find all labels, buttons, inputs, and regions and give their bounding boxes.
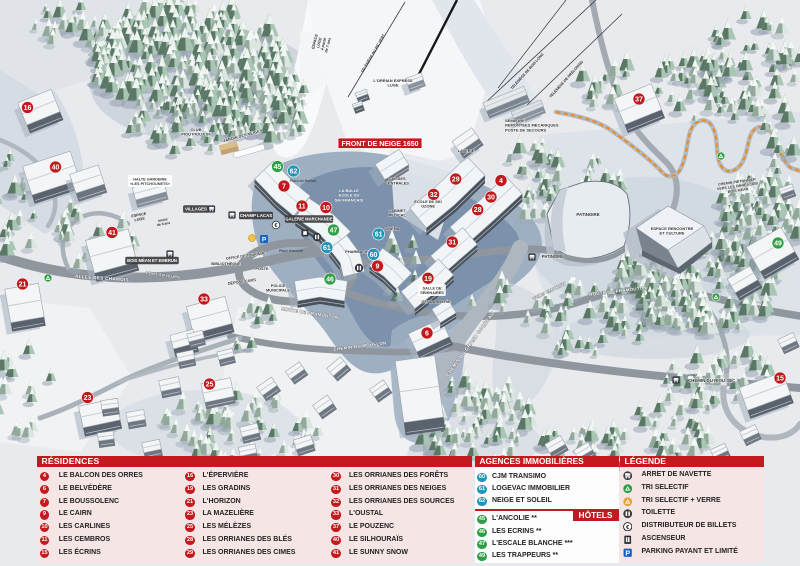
- svg-text:25: 25: [206, 382, 214, 389]
- svg-text:30: 30: [487, 195, 495, 202]
- svg-text:PATINOIRE: PATINOIRE: [542, 254, 564, 259]
- svg-text:28: 28: [474, 207, 482, 214]
- svg-text:VILLAGES: VILLAGES: [185, 207, 207, 212]
- svg-text:33: 33: [200, 297, 208, 304]
- svg-text:62: 62: [290, 169, 298, 176]
- svg-text:4: 4: [499, 178, 503, 185]
- svg-text:ARRÊT: ARRÊT: [688, 372, 698, 377]
- svg-text:SKI FRANÇAIS: SKI FRANÇAIS: [335, 197, 364, 202]
- svg-text:61: 61: [375, 232, 383, 239]
- svg-text:19: 19: [424, 276, 432, 283]
- svg-text:41: 41: [108, 230, 116, 237]
- svg-text:P: P: [625, 550, 630, 557]
- svg-text:BIBLIOTHÈQUE: BIBLIOTHÈQUE: [211, 261, 241, 266]
- svg-text:GALERIE MARCHANDE: GALERIE MARCHANDE: [285, 217, 332, 222]
- svg-text:GENDARMERIE: GENDARMERIE: [421, 299, 451, 304]
- svg-text:29: 29: [452, 177, 460, 184]
- svg-text:31: 31: [448, 240, 456, 247]
- svg-text:PATINOIRE: PATINOIRE: [576, 212, 599, 217]
- svg-text:45: 45: [274, 164, 282, 171]
- svg-text:€: €: [274, 223, 277, 229]
- svg-text:49: 49: [774, 241, 782, 248]
- svg-text:PIOU PIOU ESF: PIOU PIOU ESF: [181, 132, 211, 137]
- svg-text:LAVERIE: LAVERIE: [458, 148, 475, 153]
- svg-text:47: 47: [330, 228, 338, 235]
- svg-text:HALTE GARDERIE: HALTE GARDERIE: [133, 177, 167, 181]
- svg-text:FRONT DE NEIGE 1650: FRONT DE NEIGE 1650: [341, 141, 418, 148]
- svg-text:16: 16: [24, 105, 32, 112]
- svg-text:CHAMP LACAS: CHAMP LACAS: [240, 213, 272, 218]
- svg-text:CENTRALES: CENTRALES: [385, 181, 409, 186]
- svg-text:10: 10: [322, 205, 330, 212]
- svg-text:Place du festival: Place du festival: [290, 179, 317, 183]
- svg-text:9: 9: [376, 264, 380, 271]
- svg-text:ET CULTURE: ET CULTURE: [659, 231, 684, 236]
- svg-text:POSTE: POSTE: [255, 266, 269, 271]
- svg-text:Place d'accueil: Place d'accueil: [279, 249, 303, 253]
- svg-text:32: 32: [430, 192, 438, 199]
- svg-text:23: 23: [84, 395, 92, 402]
- svg-text:POSTE DE SECOURS: POSTE DE SECOURS: [505, 127, 546, 132]
- svg-text:LUGE: LUGE: [387, 83, 398, 88]
- svg-text:«LES PITCHOUNETS»: «LES PITCHOUNETS»: [130, 182, 170, 186]
- svg-text:MUNICIPALE: MUNICIPALE: [266, 288, 290, 293]
- svg-text:CHEMIN DU RIOU SEC: CHEMIN DU RIOU SEC: [688, 378, 736, 383]
- svg-text:7: 7: [282, 184, 286, 191]
- svg-text:PHARMACIE: PHARMACIE: [345, 249, 369, 254]
- svg-text:21: 21: [19, 282, 27, 289]
- svg-text:60: 60: [370, 252, 378, 259]
- svg-text:BOIS MÉAN ET EMBRUN: BOIS MÉAN ET EMBRUN: [127, 258, 177, 263]
- svg-text:6: 6: [425, 331, 429, 338]
- svg-text:37: 37: [635, 97, 643, 104]
- svg-text:SALLE DE: SALLE DE: [423, 286, 442, 290]
- svg-text:46: 46: [326, 277, 334, 284]
- svg-text:SÉMINAIRES: SÉMINAIRES: [420, 290, 444, 295]
- svg-text:15: 15: [776, 376, 784, 383]
- svg-text:40: 40: [52, 165, 60, 172]
- svg-text:MÉDICAL: MÉDICAL: [388, 213, 406, 218]
- svg-text:11: 11: [298, 204, 306, 211]
- svg-text:61: 61: [323, 245, 331, 252]
- svg-text:CINÉMA: CINÉMA: [384, 226, 400, 231]
- svg-text:P: P: [262, 236, 267, 243]
- svg-text:OZONE: OZONE: [421, 204, 435, 209]
